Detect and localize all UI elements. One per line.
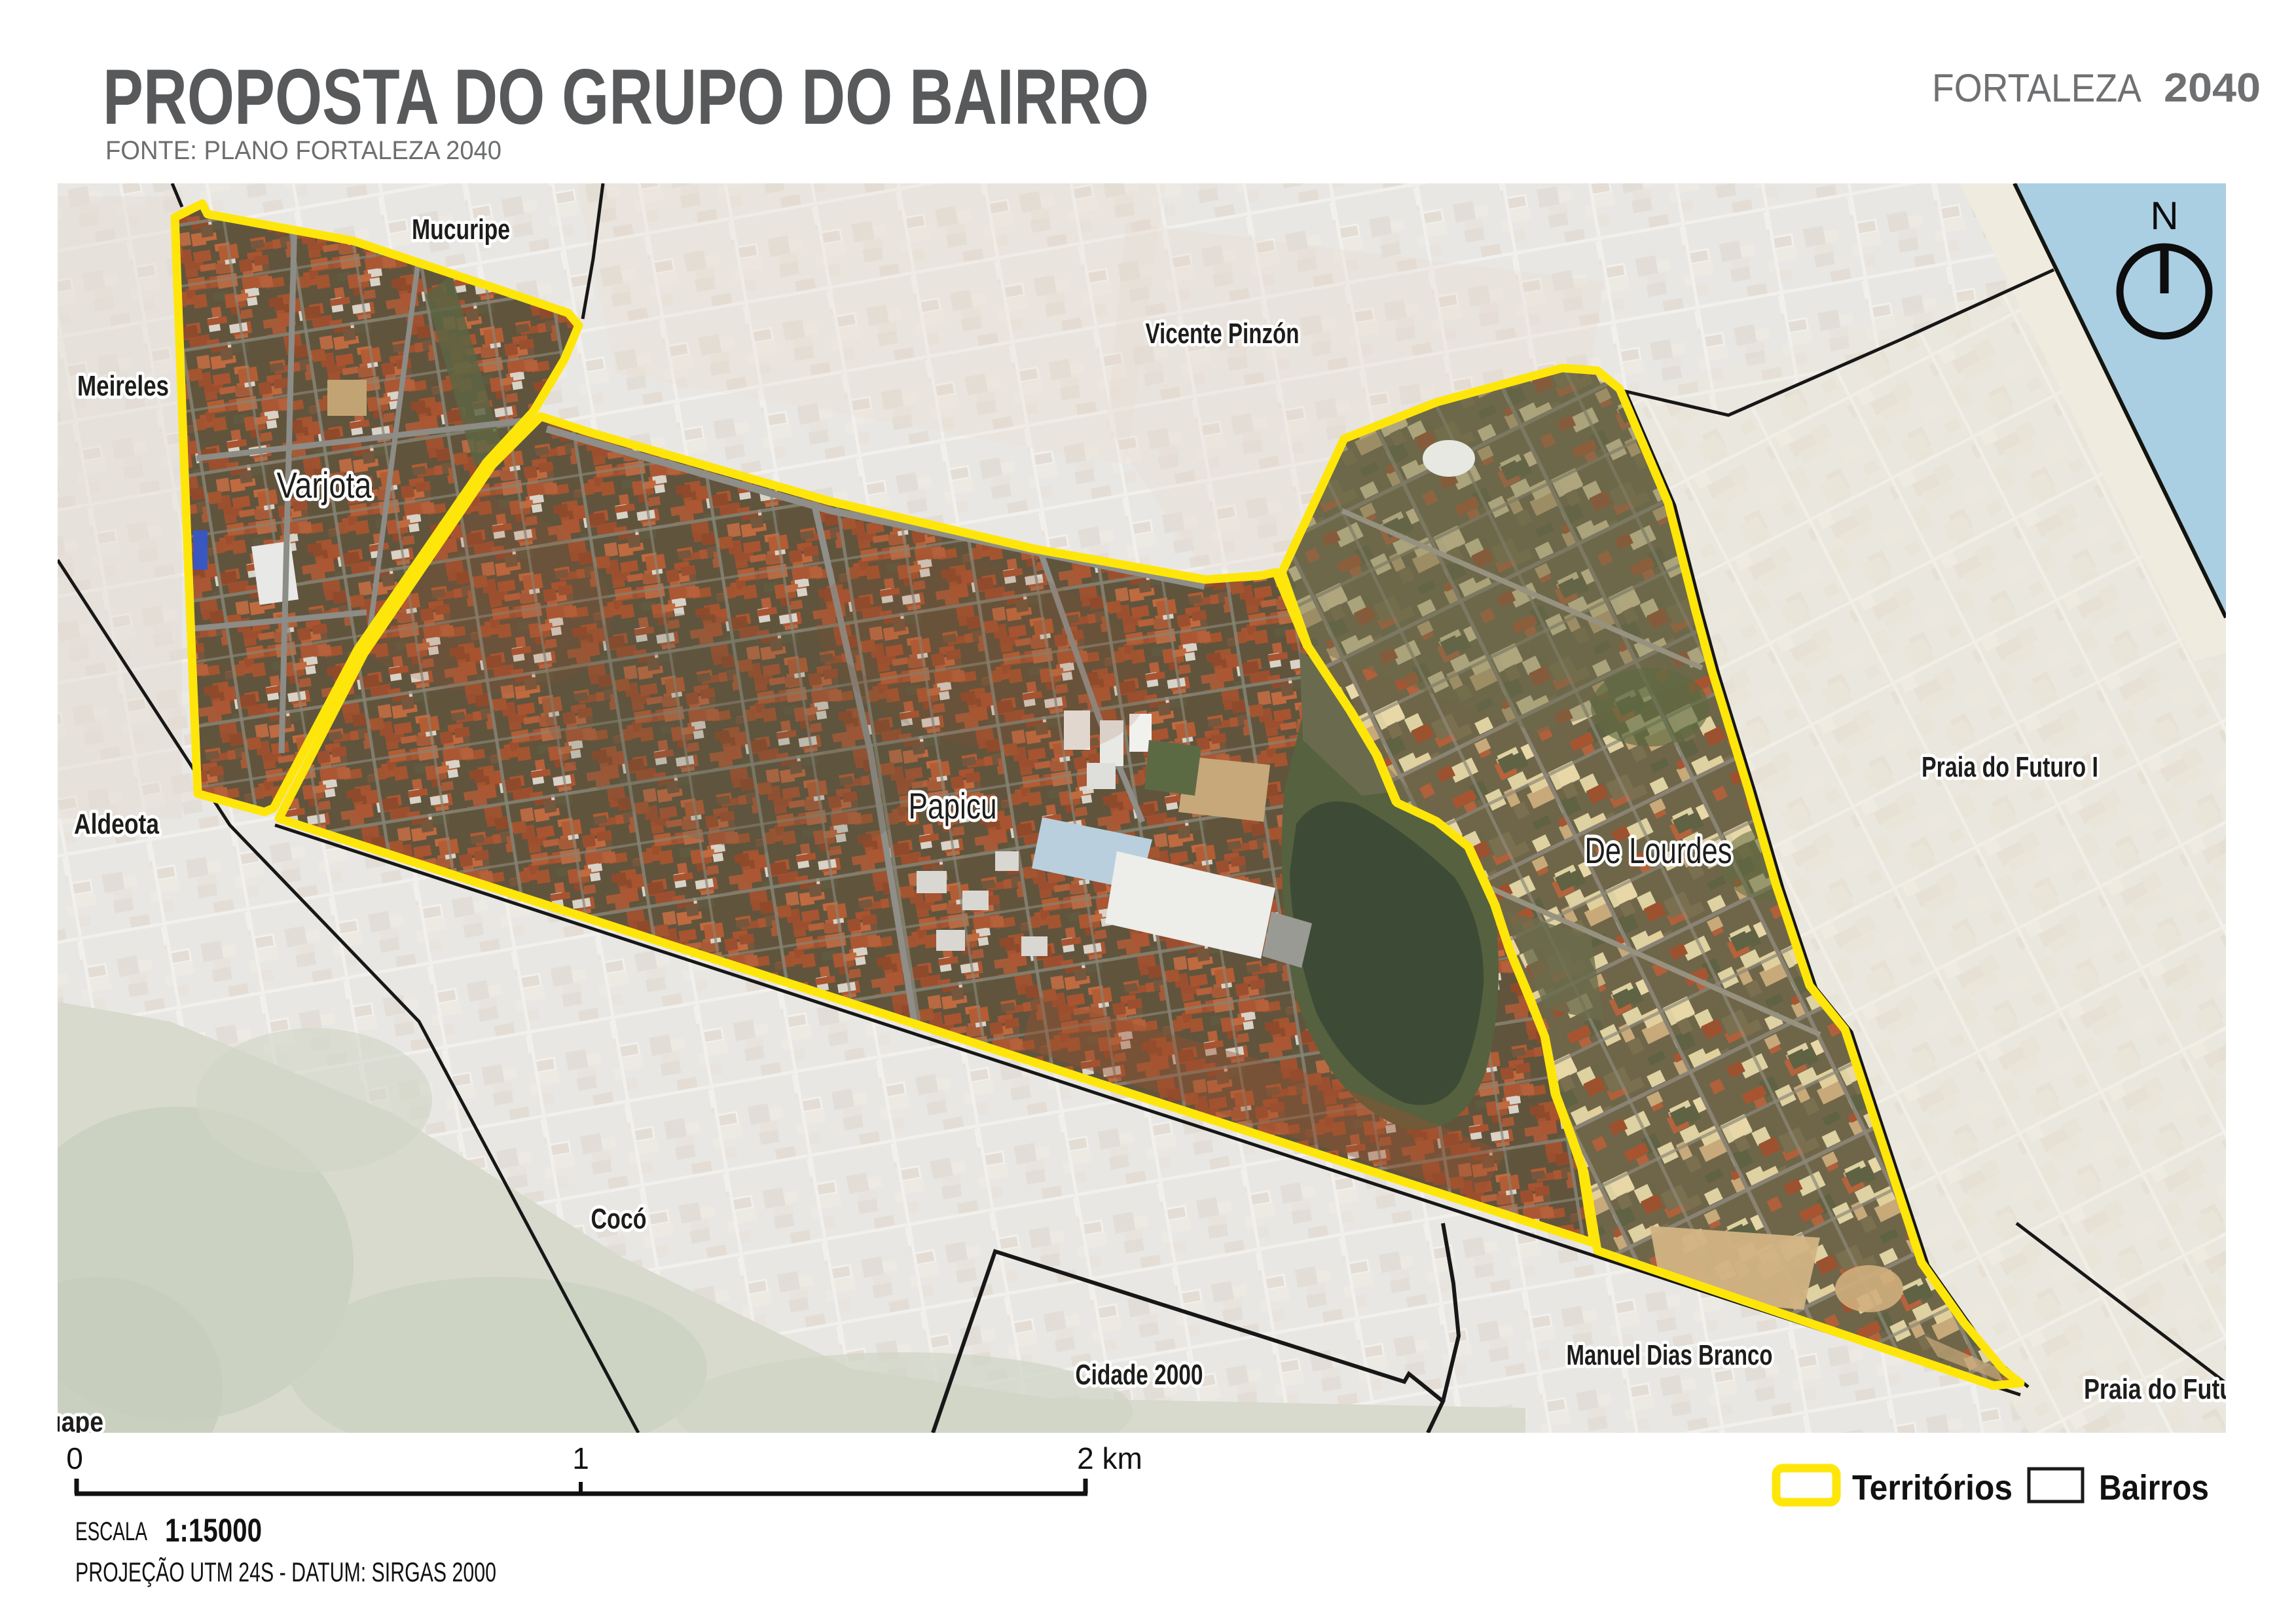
svg-text:Cidade 2000: Cidade 2000: [1076, 1359, 1203, 1391]
svg-text:Meireles: Meireles: [77, 370, 169, 402]
svg-text:Bairros: Bairros: [2099, 1468, 2209, 1507]
svg-text:Vicente Pinzón: Vicente Pinzón: [1146, 318, 1300, 350]
svg-text:ESCALA: ESCALA: [75, 1517, 147, 1546]
svg-text:Territórios: Territórios: [1852, 1468, 2013, 1507]
svg-text:N: N: [2150, 194, 2178, 238]
svg-text:2 km: 2 km: [1077, 1441, 1142, 1475]
svg-text:PROJEÇÃO UTM 24S - DATUM: SIRG: PROJEÇÃO UTM 24S - DATUM: SIRGAS 2000: [75, 1557, 496, 1587]
svg-text:Aldeota: Aldeota: [74, 808, 159, 840]
svg-text:Varjota: Varjota: [277, 464, 373, 506]
svg-text:Papicu: Papicu: [909, 785, 997, 826]
svg-text:Mucuripe: Mucuripe: [412, 213, 510, 246]
svg-text:1:15000: 1:15000: [165, 1512, 262, 1549]
svg-text:Cocó: Cocó: [591, 1203, 647, 1235]
svg-text:Praia do Futuro I: Praia do Futuro I: [1922, 751, 2098, 783]
svg-text:FORTALEZA: FORTALEZA: [1932, 66, 2141, 110]
svg-text:PROPOSTA DO GRUPO DO BAIRRO: PROPOSTA DO GRUPO DO BAIRRO: [103, 53, 1149, 141]
svg-text:2040: 2040: [2164, 65, 2261, 111]
svg-text:Manuel Dias Branco: Manuel Dias Branco: [1567, 1339, 1773, 1371]
svg-text:FONTE: PLANO FORTALEZA 2040: FONTE: PLANO FORTALEZA 2040: [105, 136, 501, 165]
svg-text:1: 1: [572, 1441, 589, 1475]
svg-text:De Lourdes: De Lourdes: [1585, 830, 1732, 871]
svg-text:0: 0: [66, 1441, 83, 1475]
